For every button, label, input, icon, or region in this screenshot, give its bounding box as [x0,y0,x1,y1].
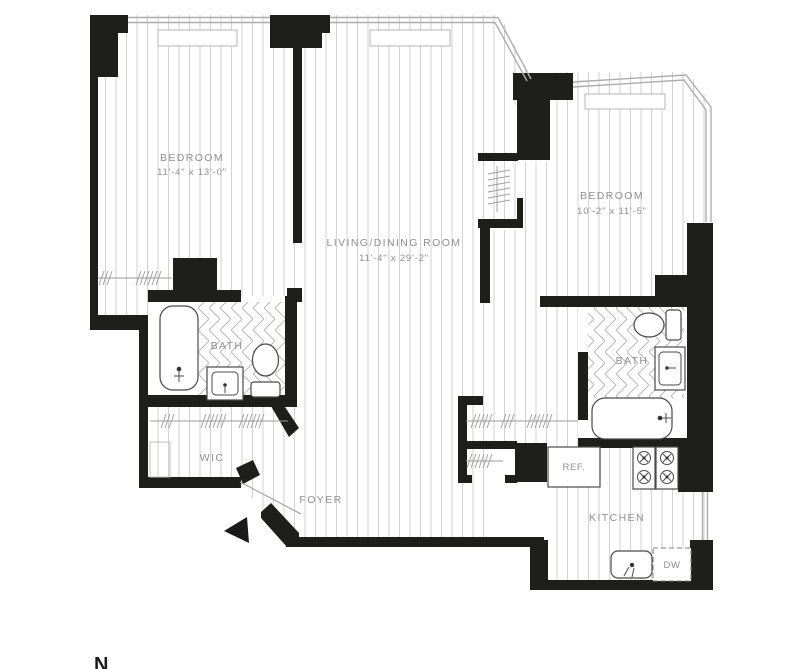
living-dining-label: LIVING/DINING ROOM [327,237,462,249]
foyer-label: FOYER [299,494,342,506]
bathtub-right-faucet [658,416,663,421]
kitchen-label: KITCHEN [589,512,645,524]
radiator-bedroom-right [585,94,665,109]
toilet-left-base [251,382,280,397]
bedroom-right-label: BEDROOM [580,190,644,202]
toilet-left [253,344,279,376]
radiator-living [370,30,450,46]
toilet-right-tank [666,310,681,340]
wic-label: WIC [200,452,225,464]
floor-plan-drawing: BEDROOM 11'-4" x 13'-0" LIVING/DINING RO… [0,0,800,669]
bathtub-left-faucet [177,367,182,372]
refrigerator-label: REF. [563,462,586,473]
entry-marker-icon [224,517,249,543]
kitchen-sink-faucet [630,563,634,567]
wic-floor [145,400,295,480]
toilet-right [634,313,664,337]
floor-plan: BEDROOM 11'-4" x 13'-0" LIVING/DINING RO… [0,0,800,669]
stove-right-module [656,447,678,489]
radiator-bedroom-left [158,30,237,46]
bedroom-right-dimensions: 10'-2" x 11'-5" [577,206,647,217]
dishwasher-label: DW [663,560,680,571]
stove-left-module [633,447,655,489]
living-dining-dimensions: 11'-4" x 29'-2" [359,253,429,264]
bath-left-label: BATH [211,340,244,352]
bath-right-label: BATH [616,355,649,367]
north-label: N [94,654,108,669]
bedroom-left-label: BEDROOM [160,152,224,164]
bedroom-left-dimensions: 11'-4" x 13'-0" [157,167,227,178]
